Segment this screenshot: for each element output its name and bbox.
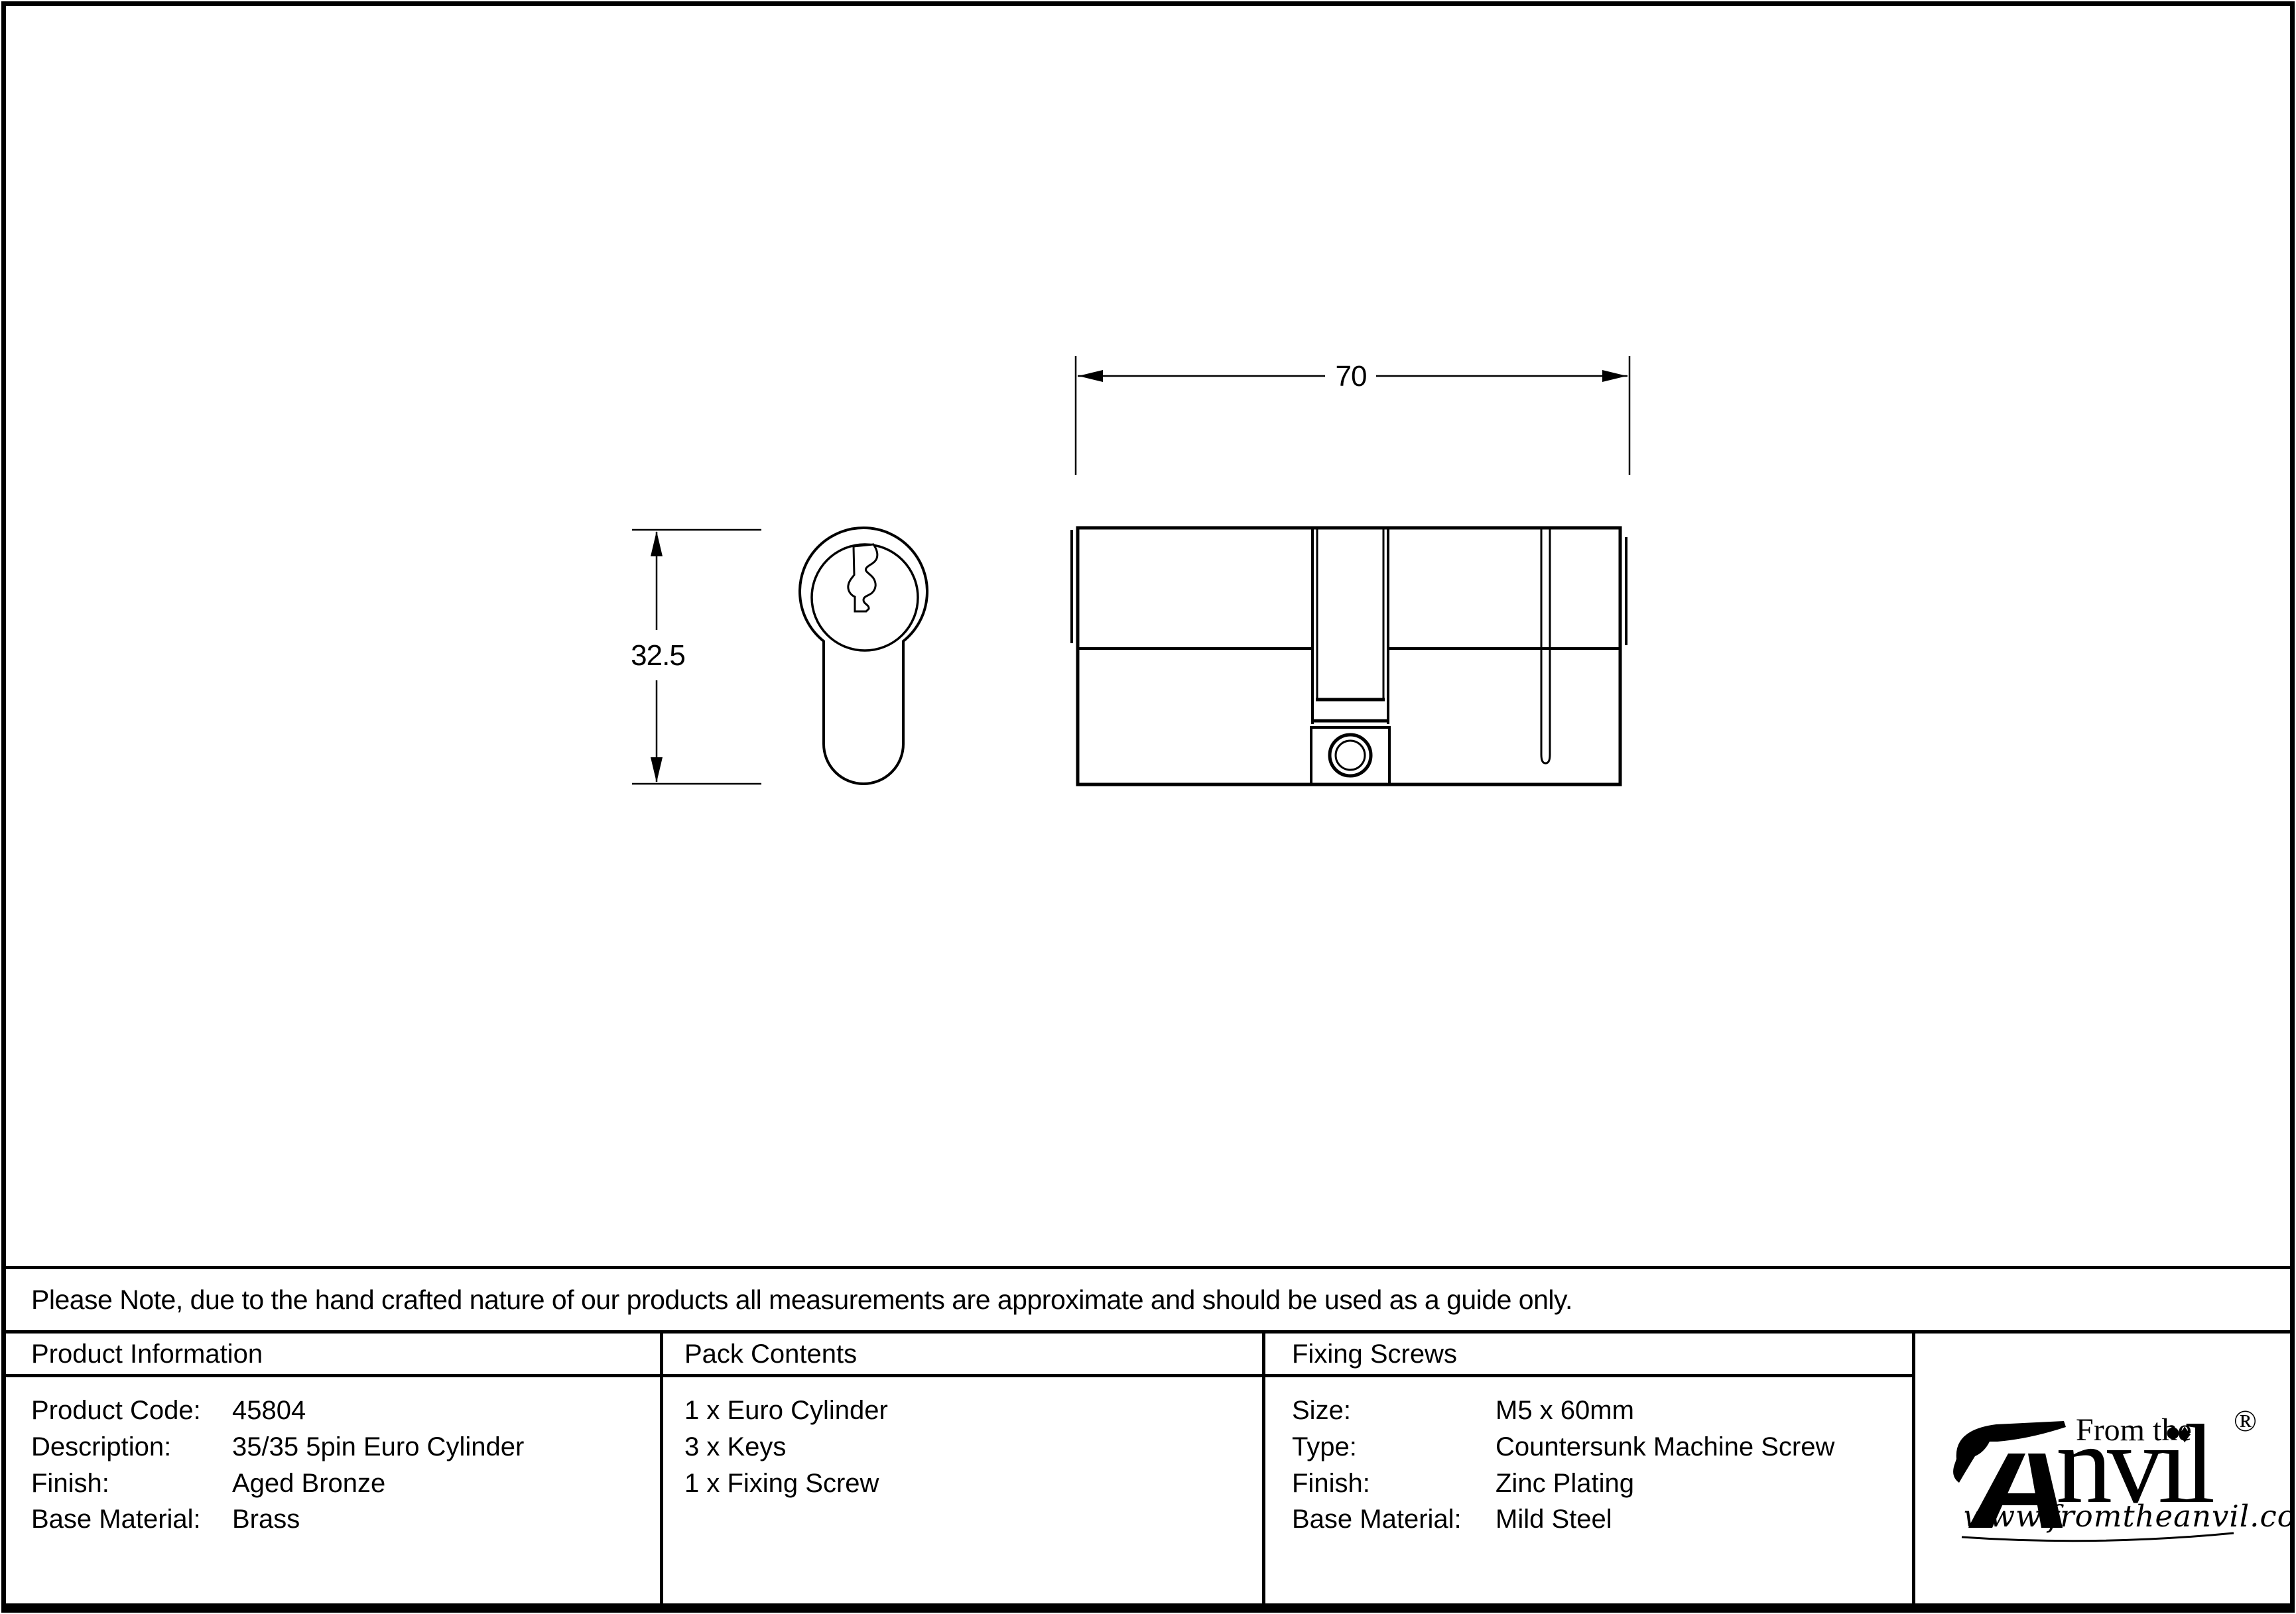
fixing-screws-header: Fixing Screws <box>1292 1334 1457 1374</box>
finish-label: Finish: <box>31 1465 109 1501</box>
description-label: Description: <box>31 1429 171 1465</box>
screw-type-label: Type: <box>1292 1429 1357 1465</box>
pack-item: 3 x Keys <box>684 1429 786 1465</box>
measurement-note: Please Note, due to the hand crafted nat… <box>31 1269 1572 1330</box>
product-information-header: Product Information <box>31 1334 263 1374</box>
pack-contents-header: Pack Contents <box>684 1334 857 1374</box>
table-row: Description: 35/35 5pin Euro Cylinder 3 … <box>0 1429 2296 1465</box>
base-material-label: Base Material: <box>31 1501 201 1537</box>
screw-size-value: M5 x 60mm <box>1496 1393 1634 1428</box>
pack-item: 1 x Euro Cylinder <box>684 1393 888 1428</box>
table-row: Product Code: 45804 1 x Euro Cylinder Si… <box>0 1393 2296 1428</box>
note-bottom-border <box>6 1330 2290 1334</box>
screw-type-value: Countersunk Machine Screw <box>1496 1429 1834 1465</box>
screw-material-label: Base Material: <box>1292 1501 1462 1537</box>
table-header-border <box>6 1374 1912 1377</box>
screw-finish-label: Finish: <box>1292 1465 1370 1501</box>
table-header-row: Product Information Pack Contents Fixing… <box>0 1334 2296 1374</box>
finish-value: Aged Bronze <box>232 1465 385 1501</box>
table-row: Finish: Aged Bronze 1 x Fixing Screw Fin… <box>0 1465 2296 1501</box>
description-value: 35/35 5pin Euro Cylinder <box>232 1429 524 1465</box>
product-code-value: 45804 <box>232 1393 306 1428</box>
screw-finish-value: Zinc Plating <box>1496 1465 1634 1501</box>
table-row: Base Material: Brass Base Material: Mild… <box>0 1501 2296 1537</box>
screw-size-label: Size: <box>1292 1393 1351 1428</box>
spec-sheet-page: 70 32.5 From the ♦ ® nvil www.fromtheanv… <box>0 0 2296 1614</box>
pack-item: 1 x Fixing Screw <box>684 1465 879 1501</box>
base-material-value: Brass <box>232 1501 300 1537</box>
screw-material-value: Mild Steel <box>1496 1501 1612 1537</box>
product-code-label: Product Code: <box>31 1393 201 1428</box>
